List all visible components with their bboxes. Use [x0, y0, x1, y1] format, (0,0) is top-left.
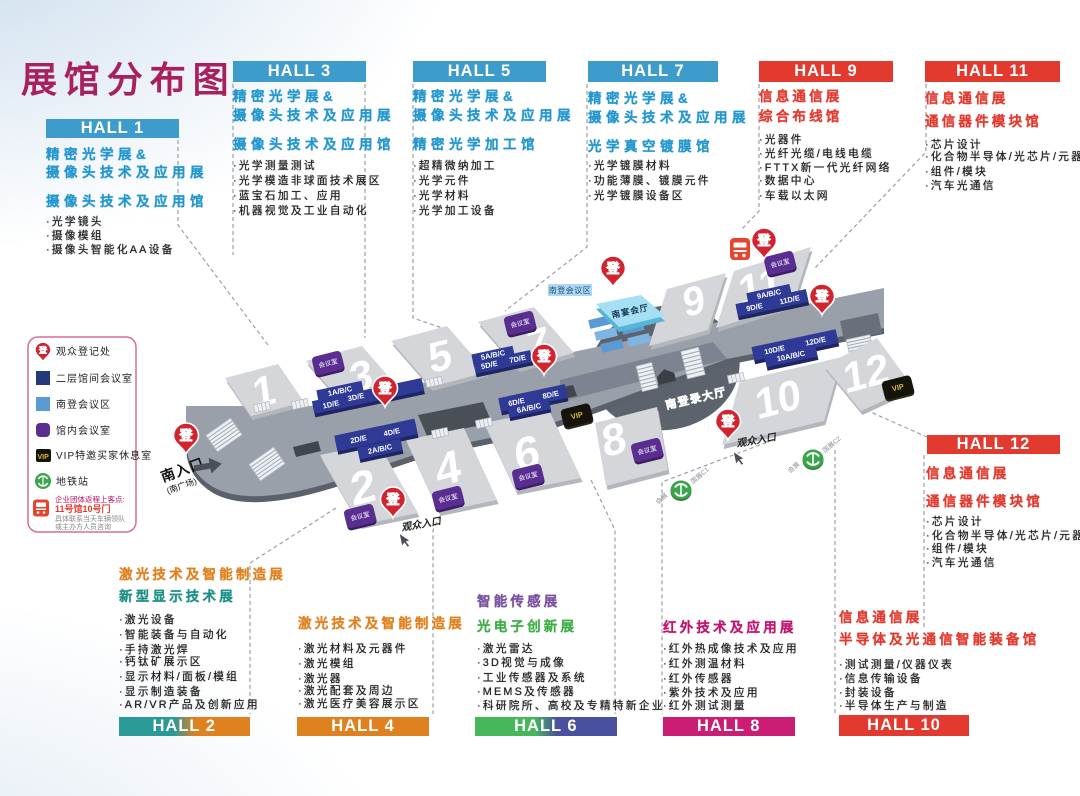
- svg-text:观众登记处: 观众登记处: [56, 345, 111, 358]
- svg-text:馆内会议室: 馆内会议室: [56, 424, 111, 437]
- svg-text:登: 登: [720, 414, 735, 429]
- svg-text:登: 登: [385, 492, 400, 507]
- svg-text:登: 登: [38, 345, 48, 355]
- svg-text:具体联系当天车辆领队: 具体联系当天车辆领队: [55, 514, 125, 523]
- svg-text:会展: 会展: [786, 459, 802, 475]
- svg-text:登: 登: [814, 289, 829, 304]
- svg-text:企业团体返程上客点:: 企业团体返程上客点:: [55, 494, 125, 504]
- svg-text:11号馆10号门: 11号馆10号门: [55, 503, 111, 514]
- svg-text:VIP特邀买家休息室: VIP特邀买家休息室: [56, 449, 152, 462]
- svg-text:地铁站: 地铁站: [56, 475, 89, 488]
- svg-text:二层馆间会议室: 二层馆间会议室: [56, 372, 133, 385]
- svg-text:VIP: VIP: [38, 454, 50, 461]
- svg-text:南登会议区: 南登会议区: [56, 398, 111, 411]
- svg-text:登: 登: [178, 428, 193, 443]
- svg-text:登: 登: [377, 381, 392, 396]
- svg-text:或主办方人员咨询: 或主办方人员咨询: [55, 522, 111, 531]
- svg-text:国展C1: 国展C1: [689, 465, 711, 485]
- svg-text:登: 登: [756, 233, 771, 248]
- svg-text:登: 登: [605, 261, 620, 276]
- svg-text:南登会议区: 南登会议区: [549, 285, 592, 295]
- svg-text:登: 登: [536, 349, 551, 364]
- svg-text:国展C2: 国展C2: [821, 434, 843, 454]
